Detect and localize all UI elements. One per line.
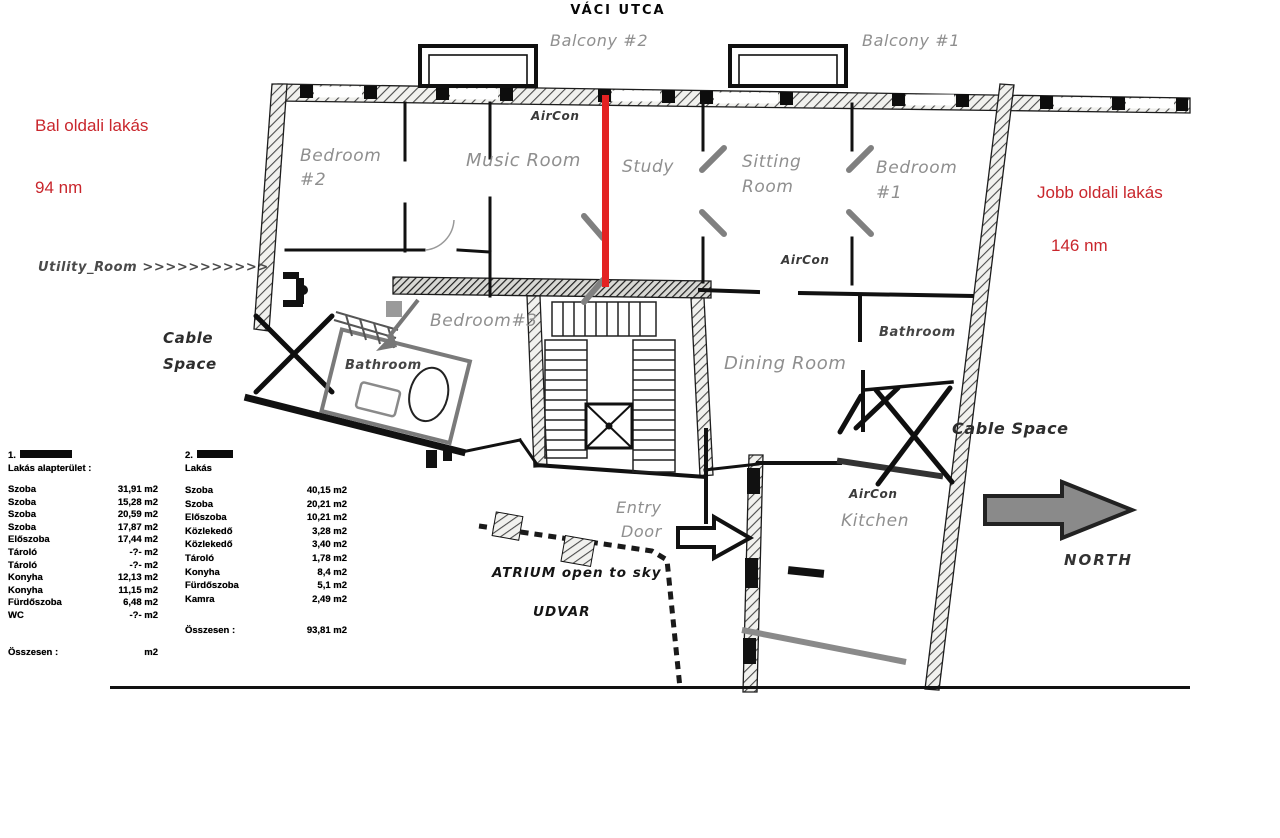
outer-walls [254, 84, 1190, 692]
kitchen-counter-line [742, 630, 906, 662]
room-area: -?- m2 [130, 560, 159, 573]
room-name: Közlekedő [185, 525, 233, 539]
floorplan-page: VÁCI UTCA Balcony #2 Balcony #1 AirCon B… [0, 0, 1280, 838]
table2-rows: Szoba 40,15 m2 Szoba 20,21 m2 Előszoba 1… [185, 484, 347, 606]
bedroom3-label: Bedroom#3 [430, 311, 538, 331]
table2-total-row: Összesen : 93,81 m2 [185, 624, 347, 638]
room-name: Konyha [8, 572, 43, 585]
atrium-label: ATRIUM open to sky [492, 565, 662, 581]
room-area: -?- m2 [130, 610, 159, 623]
cable-space-left-label-line2: Space [163, 355, 217, 373]
atrium-post-1 [492, 512, 523, 540]
north-arrow [985, 482, 1132, 538]
room-area: 20,59 m2 [118, 509, 158, 522]
utility-room-label: Utility_Room >>>>>>>>>>> [38, 260, 269, 275]
cable-space-right-label: Cable Space [952, 419, 1069, 438]
aircon-music-label: AirCon [531, 109, 580, 123]
sitting-room-label-line1: Sitting [742, 152, 801, 172]
bedroom1-label-line1: Bedroom [876, 158, 957, 178]
table-row: Közlekedő 3,28 m2 [185, 525, 347, 539]
table-row: Szoba 15,28 m2 [8, 497, 158, 510]
floorplan-drawing [0, 0, 1280, 838]
sitting-room-label-line2: Room [742, 177, 794, 197]
table-row: Konyha 8,4 m2 [185, 566, 347, 580]
room-name: Tároló [8, 560, 37, 573]
table-row: Előszoba 17,44 m2 [8, 534, 158, 547]
room-area: -?- m2 [130, 547, 159, 560]
table2-subtitle: Lakás [185, 462, 347, 477]
cable-space-left-label-line1: Cable [163, 329, 213, 347]
balcony-2-label: Balcony #2 [550, 31, 648, 50]
room-area: 5,1 m2 [317, 579, 347, 593]
room-name: Szoba [8, 522, 36, 535]
table-row: Tároló 1,78 m2 [185, 552, 347, 566]
table-row: Konyha 11,15 m2 [8, 585, 158, 598]
table-row: Közlekedő 3,40 m2 [185, 538, 347, 552]
room-area: 20,21 m2 [307, 498, 347, 512]
udvar-label: UDVAR [533, 604, 591, 620]
street-name: VÁCI UTCA [558, 3, 678, 18]
room-name: Szoba [185, 484, 213, 498]
music-room-label: Music Room [466, 150, 581, 171]
kitchen-label: Kitchen [841, 511, 909, 531]
table-row: Előszoba 10,21 m2 [185, 511, 347, 525]
table-row: Szoba 17,87 m2 [8, 522, 158, 535]
aircon-sitting-label: AirCon [781, 253, 830, 267]
room-name: Szoba [8, 509, 36, 522]
bedroom2-label-line2: #2 [300, 170, 326, 190]
room-area: 11,15 m2 [118, 585, 158, 598]
bottom-boundary-line [110, 686, 1190, 689]
entry-door-label-line1: Entry [616, 498, 662, 517]
table-row: Konyha 12,13 m2 [8, 572, 158, 585]
room-area: 1,78 m2 [312, 552, 347, 566]
room-name: Konyha [8, 585, 43, 598]
room-area: 15,28 m2 [118, 497, 158, 510]
music-south-wall [393, 277, 711, 298]
table-row: Szoba 20,21 m2 [185, 498, 347, 512]
room-name: Tároló [8, 547, 37, 560]
balcony-1-outline [730, 46, 846, 86]
room-name: Tároló [185, 552, 214, 566]
room-name: WC [8, 610, 24, 623]
left-apartment-area: 94 nm [35, 178, 82, 198]
total-label: Összesen : [185, 624, 235, 638]
table2-header: 2. [185, 450, 347, 462]
room-area: 2,49 m2 [312, 593, 347, 607]
room-area: 17,44 m2 [118, 534, 158, 547]
table1-prefix: 1. [8, 450, 16, 461]
table-row: Kamra 2,49 m2 [185, 593, 347, 607]
table2-prefix: 2. [185, 450, 193, 461]
table2-smudge [197, 450, 233, 458]
bathroom-right-label: Bathroom [879, 325, 956, 340]
north-label: NORTH [1064, 551, 1133, 569]
table-row: WC -?- m2 [8, 610, 158, 623]
utility-fixture [298, 285, 308, 295]
study-label: Study [622, 157, 674, 177]
room-area: 6,48 m2 [123, 597, 158, 610]
stair-right-wall [691, 298, 713, 476]
room-name: Fürdőszoba [185, 579, 239, 593]
aircon-kitchen-label: AirCon [849, 487, 898, 501]
table1-total-row: Összesen : m2 [8, 647, 158, 660]
room-area: 12,13 m2 [118, 572, 158, 585]
elevator-shaft [586, 404, 632, 448]
room-area: 40,15 m2 [307, 484, 347, 498]
table1-rows: Szoba 31,91 m2 Szoba 15,28 m2 Szoba 20,5… [8, 484, 158, 623]
room-area: 8,4 m2 [317, 566, 347, 580]
area-table-apartment-1: 1. Lakás alapterület : Szoba 31,91 m2 Sz… [8, 450, 158, 659]
left-apartment-title: Bal oldali lakás [35, 116, 148, 136]
total-value: 93,81 m2 [307, 624, 347, 638]
room-area: 3,28 m2 [312, 525, 347, 539]
entry-door-label-line2: Door [621, 522, 662, 541]
table-row: Tároló -?- m2 [8, 560, 158, 573]
room-name: Előszoba [8, 534, 50, 547]
table1-smudge [20, 450, 72, 458]
bathroom-left-label: Bathroom [345, 358, 422, 373]
room-name: Szoba [8, 484, 36, 497]
balcony-1-label: Balcony #1 [862, 31, 960, 50]
room-name: Előszoba [185, 511, 227, 525]
table1-subtitle: Lakás alapterület : [8, 462, 158, 477]
table-row: Szoba 20,59 m2 [8, 509, 158, 522]
bedroom3-marker [386, 301, 402, 317]
area-table-apartment-2: 2. Lakás Szoba 40,15 m2 Szoba 20,21 m2 E… [185, 450, 347, 638]
dining-room-label: Dining Room [724, 353, 847, 374]
room-area: 10,21 m2 [307, 511, 347, 525]
bedroom1-label-line2: #1 [876, 183, 902, 203]
room-name: Fürdőszoba [8, 597, 62, 610]
table-row: Tároló -?- m2 [8, 547, 158, 560]
left-wall [254, 84, 287, 331]
atrium-post-2 [561, 536, 595, 567]
balcony-2-outline [420, 46, 536, 86]
cable-space-left-x [256, 316, 332, 392]
room-name: Közlekedő [185, 538, 233, 552]
table-row: Szoba 31,91 m2 [8, 484, 158, 497]
room-area: 17,87 m2 [118, 522, 158, 535]
room-name: Konyha [185, 566, 220, 580]
red-divider-line [602, 95, 609, 287]
bedroom2-door-arc [426, 220, 454, 250]
total-value: m2 [144, 647, 158, 660]
room-name: Szoba [8, 497, 36, 510]
entry-arrow [678, 517, 750, 558]
table-row: Fürdőszoba 6,48 m2 [8, 597, 158, 610]
table-row: Fürdőszoba 5,1 m2 [185, 579, 347, 593]
table-row: Szoba 40,15 m2 [185, 484, 347, 498]
total-label: Összesen : [8, 647, 58, 660]
right-apartment-title: Jobb oldali lakás [1037, 183, 1163, 203]
bedroom2-label-line1: Bedroom [300, 146, 381, 166]
room-area: 31,91 m2 [118, 484, 158, 497]
room-name: Szoba [185, 498, 213, 512]
room-name: Kamra [185, 593, 215, 607]
room-area: 3,40 m2 [312, 538, 347, 552]
right-apartment-area: 146 nm [1051, 236, 1108, 256]
table1-header: 1. [8, 450, 158, 462]
